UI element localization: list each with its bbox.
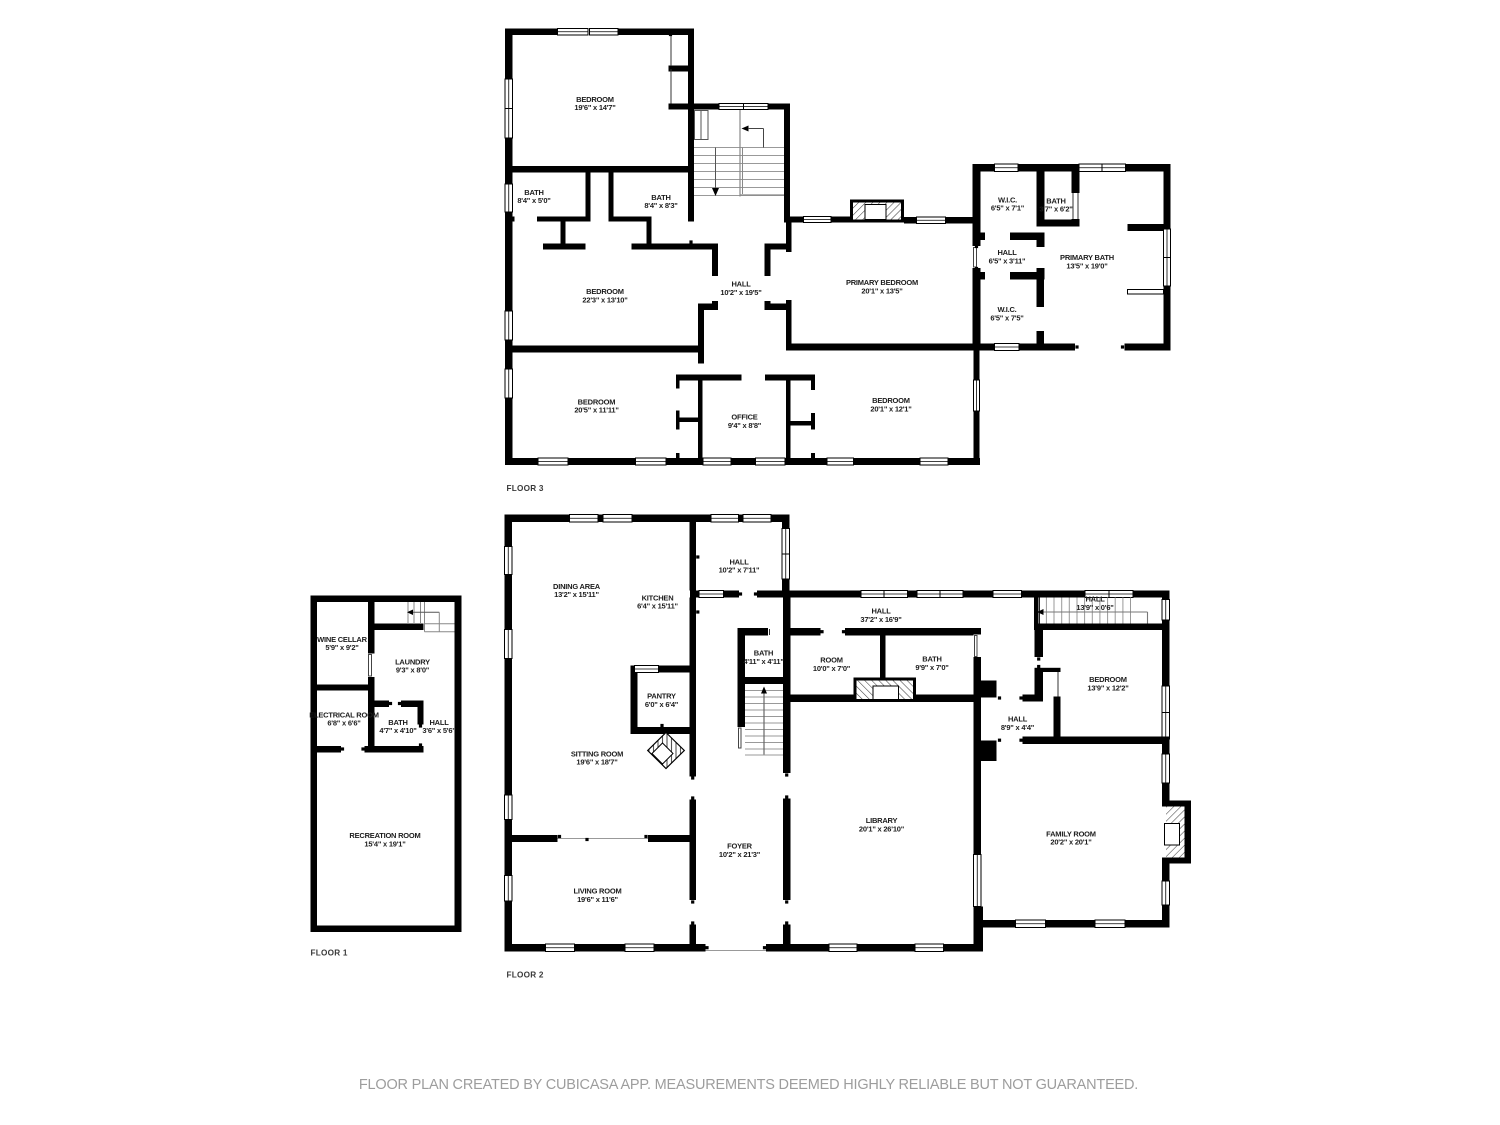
svg-text:20'5" x 11'11": 20'5" x 11'11" xyxy=(574,406,619,415)
svg-text:13'2" x 15'11": 13'2" x 15'11" xyxy=(554,590,599,599)
svg-text:8'4" x 8'3": 8'4" x 8'3" xyxy=(644,201,678,210)
svg-text:10'0" x 7'0": 10'0" x 7'0" xyxy=(813,664,851,673)
svg-text:10'2" x 21'3": 10'2" x 21'3" xyxy=(719,850,761,859)
svg-text:FLOOR 2: FLOOR 2 xyxy=(507,971,544,980)
svg-text:4'11" x 4'11": 4'11" x 4'11" xyxy=(743,657,784,666)
svg-text:9'4" x 8'8": 9'4" x 8'8" xyxy=(728,421,762,430)
svg-text:8'9" x 4'4": 8'9" x 4'4" xyxy=(1001,723,1035,732)
svg-text:10'2" x 7'11": 10'2" x 7'11" xyxy=(719,566,760,575)
svg-text:6'4" x 15'11": 6'4" x 15'11" xyxy=(637,602,678,611)
svg-text:13'9" x 0'6": 13'9" x 0'6" xyxy=(1076,603,1114,612)
svg-text:10'2" x 19'5": 10'2" x 19'5" xyxy=(720,288,762,297)
svg-text:19'6" x 11'6": 19'6" x 11'6" xyxy=(577,895,618,904)
svg-text:6'8" x 6'6": 6'8" x 6'6" xyxy=(327,719,361,728)
svg-text:6'0" x 6'4": 6'0" x 6'4" xyxy=(645,700,679,709)
svg-text:19'6" x 14'7": 19'6" x 14'7" xyxy=(574,103,616,112)
svg-text:20'1" x 13'5": 20'1" x 13'5" xyxy=(861,286,903,295)
svg-text:6'5" x 7'1": 6'5" x 7'1" xyxy=(991,204,1025,213)
svg-text:8'4" x 5'0": 8'4" x 5'0" xyxy=(517,196,551,205)
svg-text:19'6" x 18'7": 19'6" x 18'7" xyxy=(576,758,618,767)
svg-text:15'4" x 19'1": 15'4" x 19'1" xyxy=(364,839,406,848)
svg-text:20'1" x 12'1": 20'1" x 12'1" xyxy=(870,405,912,414)
svg-text:6'5" x 7'5": 6'5" x 7'5" xyxy=(990,314,1024,323)
svg-text:37'2" x 16'9": 37'2" x 16'9" xyxy=(860,615,902,624)
svg-text:22'3" x 13'10": 22'3" x 13'10" xyxy=(582,296,628,305)
svg-text:4'7" x 4'10": 4'7" x 4'10" xyxy=(379,726,417,735)
svg-text:13'9" x 12'2": 13'9" x 12'2" xyxy=(1087,683,1129,692)
svg-text:3'6" x 5'6": 3'6" x 5'6" xyxy=(422,726,456,735)
svg-text:9'3" x 8'0": 9'3" x 8'0" xyxy=(396,666,430,675)
svg-text:3'7" x 6'2": 3'7" x 6'2" xyxy=(1039,205,1073,214)
svg-text:13'5" x 19'0": 13'5" x 19'0" xyxy=(1066,261,1108,270)
svg-text:6'5" x 3'11": 6'5" x 3'11" xyxy=(989,257,1026,266)
svg-text:FLOOR 1: FLOOR 1 xyxy=(311,949,348,958)
svg-text:FLOOR 3: FLOOR 3 xyxy=(507,484,544,493)
svg-text:FLOOR PLAN CREATED BY CUBICASA: FLOOR PLAN CREATED BY CUBICASA APP. MEAS… xyxy=(359,1077,1138,1093)
svg-text:9'9" x 7'0": 9'9" x 7'0" xyxy=(915,663,949,672)
svg-text:20'2" x 20'1": 20'2" x 20'1" xyxy=(1050,838,1092,847)
svg-text:5'9" x 9'2": 5'9" x 9'2" xyxy=(325,643,359,652)
svg-text:20'1" x 26'10": 20'1" x 26'10" xyxy=(859,825,905,834)
